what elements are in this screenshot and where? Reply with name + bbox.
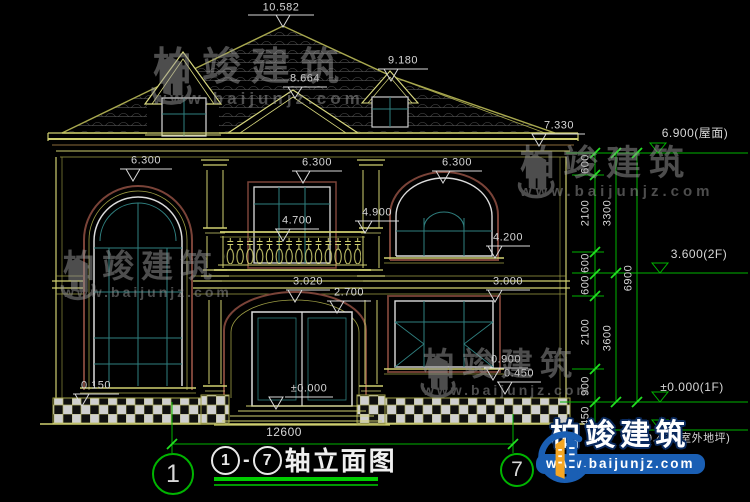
dim-6900-total: 6900 [624, 265, 635, 291]
elevation-label-ridge-right: 9.180 [388, 56, 418, 67]
brand-logo: 柏竣建筑 www.baijunjz.com [532, 421, 705, 474]
window-right-1f [384, 296, 504, 374]
title-axis-to: 7 [253, 446, 282, 475]
axis-bubble-7: 7 [500, 453, 534, 487]
balcony [214, 232, 371, 281]
elevation-label-balcony-rail: 4.700 [282, 216, 312, 227]
dim-900: 900 [581, 376, 592, 396]
drawing-title: 1 - 7 轴立面图 [211, 446, 397, 475]
title-text: 轴立面图 [285, 448, 397, 474]
level-label-floor1: ±0.000(1F) [660, 381, 724, 393]
title-separator: - [243, 449, 250, 472]
elevation-label-window1-sill: 0.900 [491, 355, 521, 366]
axis-bubble-1: 1 [152, 453, 194, 495]
elevation-label-plinth-left: 0.150 [81, 381, 111, 392]
dim-2100-a: 2100 [581, 200, 592, 226]
window-left [80, 186, 196, 393]
elevation-label-entry-top: 2.700 [334, 288, 364, 299]
dim-3300: 3300 [603, 200, 614, 226]
title-axis-from: 1 [211, 446, 240, 475]
dim-600-a: 600 [581, 154, 592, 174]
elevation-label-column-capital: 4.900 [362, 208, 392, 219]
elevation-label-eave-right: 7.330 [544, 121, 574, 132]
elevation-label-window-top-center: 6.300 [302, 158, 332, 169]
dim-600-b: 600 [581, 253, 592, 273]
elevation-label-plinth-right: 0.450 [504, 369, 534, 380]
elevation-label-window-top-left: 6.300 [131, 156, 161, 167]
dim-3600: 3600 [603, 325, 614, 351]
dim-2100-b: 2100 [581, 319, 592, 345]
elevation-label-peak: 10.582 [263, 3, 300, 14]
dim-600-c: 600 [581, 275, 592, 295]
level-label-floor2: 3.600(2F) [671, 248, 728, 260]
cad-elevation-screenshot: 10.582 9.180 8.664 7.330 6.300 6.300 6.3… [0, 0, 750, 502]
elevation-label-window2-sill: 4.200 [493, 233, 523, 244]
elevation-label-entry-arch: 3.020 [293, 277, 323, 288]
elevation-label-floor2-right: 3.000 [493, 277, 523, 288]
elevation-label-porch-gable: 8.664 [290, 74, 320, 85]
elevation-label-window-top-right: 6.300 [442, 158, 472, 169]
level-label-roof: 6.900(屋面) [662, 127, 729, 139]
elevation-label-entry-ground: ±0.000 [291, 384, 328, 395]
cornice [48, 133, 578, 157]
title-underline [214, 477, 378, 486]
dim-12600-overall: 12600 [266, 426, 302, 438]
window-right-2f [384, 172, 504, 263]
